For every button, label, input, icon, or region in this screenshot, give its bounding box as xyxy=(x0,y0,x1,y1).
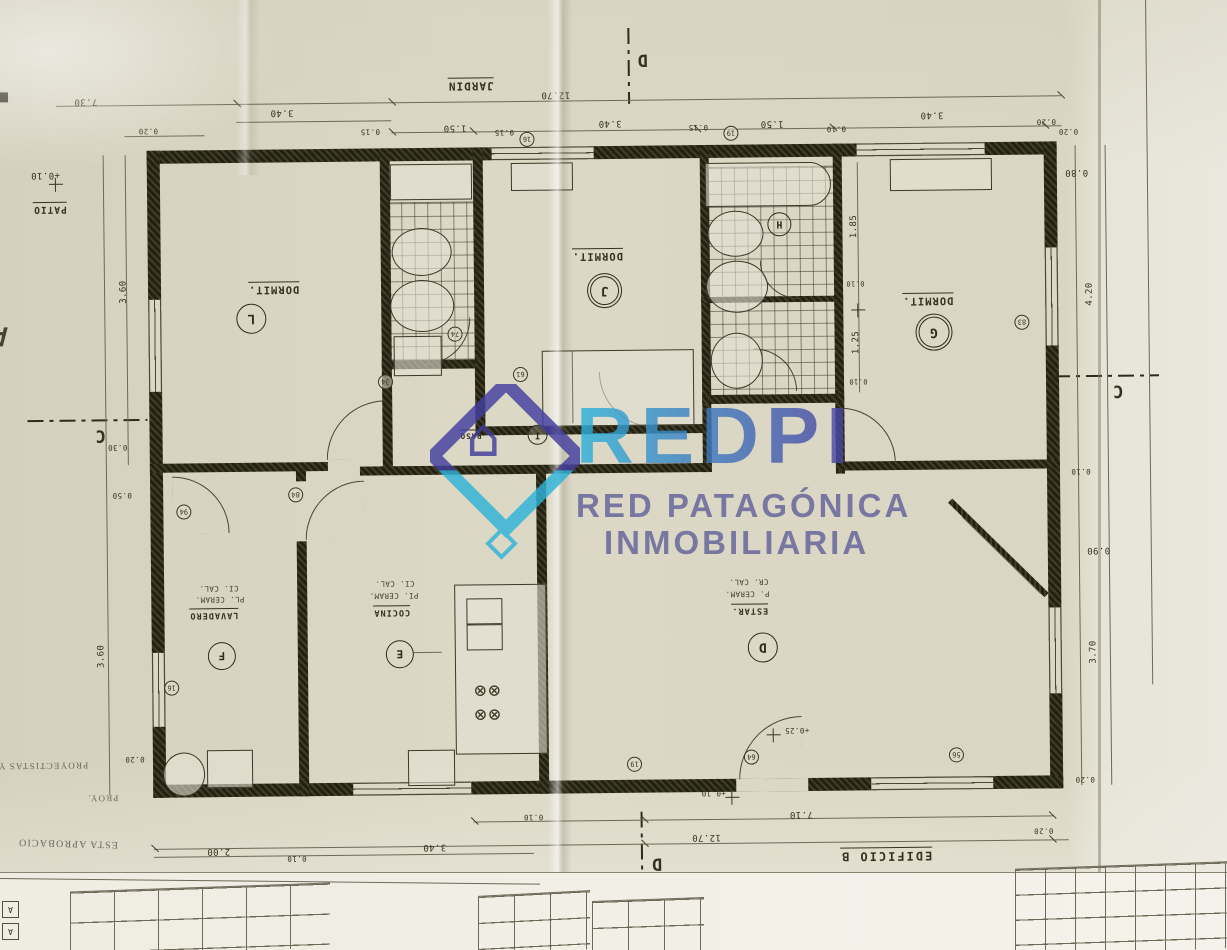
washbasin xyxy=(711,332,764,389)
ref-marker: 74 xyxy=(447,327,462,342)
estar-door-level: +0.25 xyxy=(785,726,810,735)
patio-label: PATIO xyxy=(33,202,67,215)
grid-sketch xyxy=(478,890,590,950)
room-key-l: L xyxy=(236,304,266,334)
ref-marker: 56 xyxy=(949,747,964,762)
dim-top-left: 0.15 xyxy=(360,127,380,136)
wall xyxy=(702,404,712,472)
washbasin xyxy=(394,336,442,377)
grid-sketch xyxy=(592,897,704,950)
dim-bath: 0.10 xyxy=(846,279,865,287)
closet xyxy=(390,163,472,200)
dim-top: 1.50 xyxy=(443,123,466,133)
margin-letter: A xyxy=(0,320,8,350)
dim-top: 0.10 xyxy=(826,125,846,134)
dim-bath: 1.85 xyxy=(849,215,859,238)
paper-fold xyxy=(548,0,572,872)
section-letter-c-right: C xyxy=(1113,381,1123,401)
window xyxy=(148,300,162,392)
dim-right: 0.20 xyxy=(1075,775,1095,784)
bottom-sheet-strip: A A xyxy=(0,872,1227,950)
ref-marker: 19 xyxy=(723,126,738,141)
dim-line xyxy=(103,155,111,795)
dim-bottom: 3.40 xyxy=(423,842,446,852)
dim-line xyxy=(1075,145,1083,785)
fireplace-line xyxy=(962,516,1041,594)
room-label-dormit-l: DORMIT. xyxy=(248,281,299,296)
room-key-g: G xyxy=(918,316,949,347)
dim-bath: 1.25 xyxy=(851,331,861,354)
grid-sketch xyxy=(70,882,330,950)
section-line-c-left xyxy=(27,419,147,422)
cocina-finish-ceiling: CI. CAL. xyxy=(375,579,414,588)
room-label-cocina: COCINA xyxy=(373,605,410,617)
stamp-text: PROY. xyxy=(87,793,118,803)
ref-marker: 83 xyxy=(1014,315,1029,330)
section-letter-d-top: D xyxy=(638,50,648,70)
kitchen-table xyxy=(408,750,455,786)
dim-bottom: 0.10 xyxy=(524,813,544,822)
door-arc xyxy=(326,400,386,460)
section-letter-d-bottom: D xyxy=(652,854,662,874)
laundry-tub xyxy=(163,752,205,796)
stamp-text: ESTA APROBACIO xyxy=(18,837,118,850)
ref-marker: 64 xyxy=(744,749,759,764)
margin-box-a: A xyxy=(2,901,19,918)
dim-top: 0.15 xyxy=(688,123,708,132)
paso-label: PASO xyxy=(460,429,482,440)
dim-bottom: 0.10 xyxy=(287,854,307,863)
edificio-label: EDIFICIO B xyxy=(840,847,932,864)
stamp-text: PROYECTISTAS Y CAL xyxy=(0,761,88,772)
dim-right: 0.80 xyxy=(1065,167,1088,177)
dim-bottom: 0.20 xyxy=(1034,826,1054,835)
wall xyxy=(297,541,310,796)
dim-top: 3.40 xyxy=(598,118,621,128)
dim-line xyxy=(857,162,860,392)
floor-level: +0.10 xyxy=(701,789,726,798)
kitchen-sink xyxy=(466,598,502,624)
level-cross xyxy=(857,303,859,317)
ref-marker: 16 xyxy=(164,681,179,696)
level-cross xyxy=(55,178,57,192)
window xyxy=(871,776,993,790)
wall xyxy=(475,359,486,435)
bathtub xyxy=(705,162,831,207)
dim-left: 3.60 xyxy=(96,645,106,668)
floor-plan-photo: ⊗⊗⊗⊗ D D C C xyxy=(0,0,1227,950)
dim-bottom: 2.00 xyxy=(207,846,230,856)
ref-marker: 94 xyxy=(176,504,191,519)
dim-right: 0.20 xyxy=(1058,127,1078,136)
paper-crease xyxy=(1098,0,1101,872)
window xyxy=(1048,607,1062,693)
dim-bath: 0.10 xyxy=(849,377,868,385)
kitchen-sink xyxy=(467,624,503,650)
wall xyxy=(296,467,306,481)
room-key-f: F xyxy=(208,642,236,670)
door-arc xyxy=(305,481,365,541)
lavadero-finish-floor: PL. CERAM. xyxy=(195,595,244,605)
ref-marker: 84 xyxy=(288,487,303,502)
dim-top: 3.40 xyxy=(920,110,943,120)
ref-marker: 61 xyxy=(513,367,528,382)
key-leader-line xyxy=(414,652,442,653)
dim-top: 0.20 xyxy=(1036,117,1056,126)
estar-finish-floor: P. CERAM. xyxy=(725,589,769,598)
room-label-dormit-j: DORMIT. xyxy=(572,248,623,263)
dim-left: 0.50 xyxy=(112,491,132,500)
window xyxy=(857,142,985,156)
jardin-label: JARDIN xyxy=(448,77,494,92)
dim-line xyxy=(1145,0,1153,684)
room-label-lavadero: LAVADERO xyxy=(189,608,238,621)
level-cross xyxy=(731,791,733,805)
margin-box-a: A xyxy=(2,923,19,940)
room-key-i: I xyxy=(527,425,547,445)
window xyxy=(492,146,594,160)
dim-left: 0.30 xyxy=(108,443,128,452)
dim-bottom: 7.10 xyxy=(790,809,813,819)
dim-bottom: 12.70 xyxy=(692,832,721,842)
room-label-estar: ESTAR. xyxy=(731,603,768,615)
room-key-h: H xyxy=(767,212,791,236)
dim-right: 0.10 xyxy=(1071,467,1091,476)
cocina-finish-floor: PI. CERAM. xyxy=(369,591,418,601)
dim-left: 0.20 xyxy=(125,755,145,764)
estar-finish-ceiling: CR. CAL. xyxy=(729,577,768,586)
room-key-d: D xyxy=(748,632,778,662)
section-line-d-top xyxy=(627,28,630,104)
room-label-dormit-g: DORMIT. xyxy=(902,292,953,307)
door-arc xyxy=(839,407,896,464)
wall xyxy=(360,463,706,476)
door-opening xyxy=(736,778,808,792)
lavadero-finish-ceiling: CI. CAL. xyxy=(199,584,238,593)
room-key-j: J xyxy=(590,276,619,305)
dim-top: 1.50 xyxy=(760,118,783,128)
washing-machine xyxy=(207,750,253,788)
section-letter-c-left: C xyxy=(95,425,105,445)
ref-marker: 34 xyxy=(378,374,393,389)
wall-diagonal-fireplace xyxy=(948,498,1049,597)
ref-marker: 19 xyxy=(627,757,642,772)
dim-top: 0.15 xyxy=(494,128,514,137)
grid-sketch xyxy=(1015,861,1227,950)
closet xyxy=(890,158,992,191)
window xyxy=(1045,247,1059,345)
dim-line xyxy=(1105,145,1113,785)
level-cross xyxy=(773,728,775,742)
dim-left: 3.60 xyxy=(119,280,129,303)
ref-marker: 16 xyxy=(519,132,534,147)
paper-highlight xyxy=(0,0,280,170)
stove-burners: ⊗⊗⊗⊗ xyxy=(472,679,501,727)
room-key-e: E xyxy=(386,640,414,668)
dim-right: 4.20 xyxy=(1085,282,1095,305)
